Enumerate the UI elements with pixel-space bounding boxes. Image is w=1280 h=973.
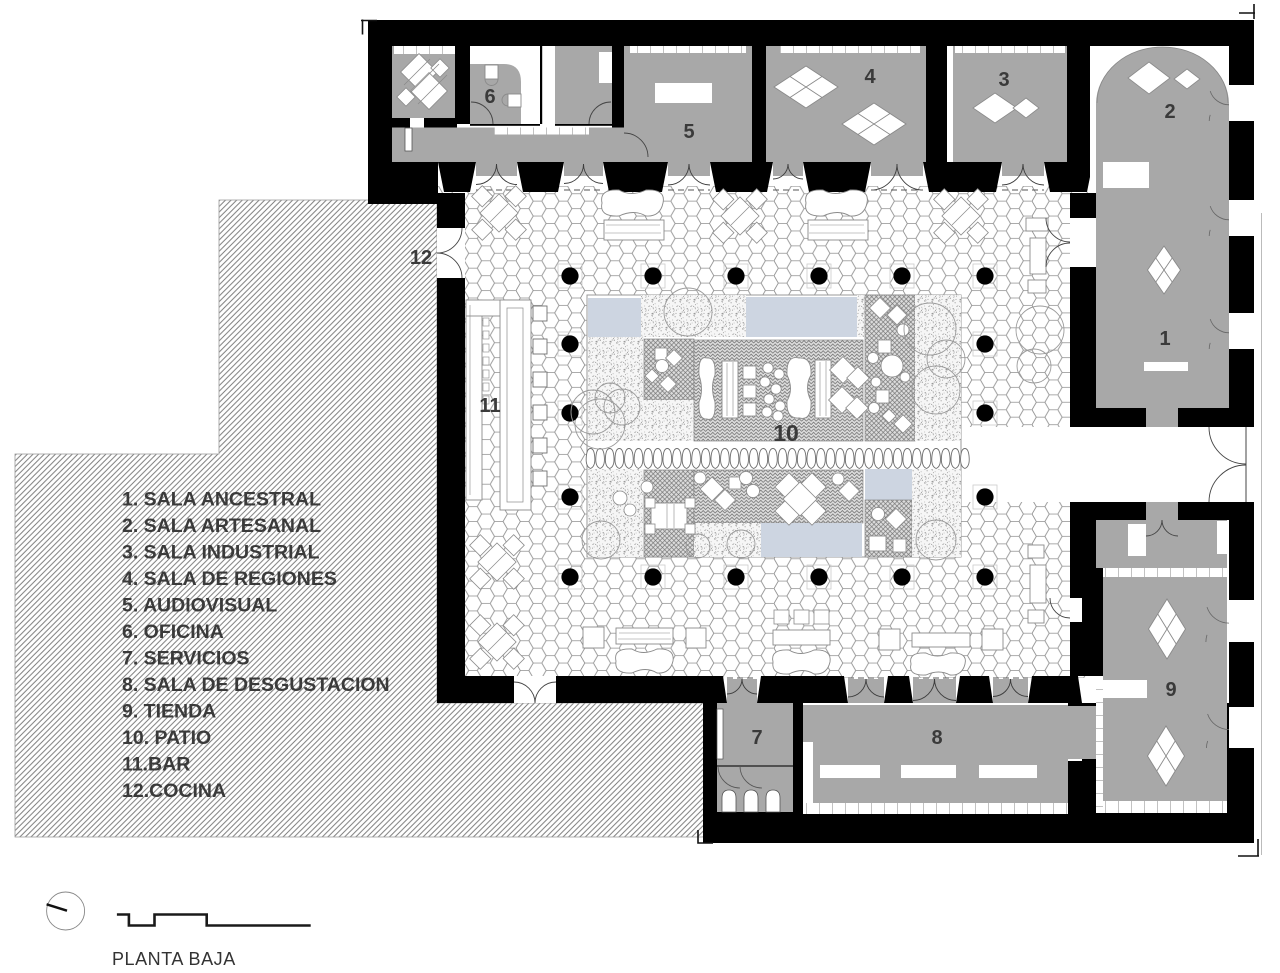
svg-text:3: 3	[998, 69, 1009, 91]
svg-text:2. SALA ARTESANAL: 2. SALA ARTESANAL	[122, 515, 321, 537]
svg-text:2: 2	[1164, 101, 1175, 123]
svg-text:8: 8	[931, 727, 942, 749]
svg-text:10: 10	[773, 420, 799, 446]
svg-text:12: 12	[410, 247, 432, 269]
svg-text:7: 7	[751, 727, 762, 749]
svg-text:7. SERVICIOS: 7. SERVICIOS	[122, 648, 250, 670]
svg-text:8. SALA DE DESGUSTACION: 8. SALA DE DESGUSTACION	[122, 674, 390, 696]
svg-text:9: 9	[1165, 679, 1176, 701]
svg-text:1. SALA ANCESTRAL: 1. SALA ANCESTRAL	[122, 489, 321, 511]
svg-text:4. SALA DE REGIONES: 4. SALA DE REGIONES	[122, 568, 337, 590]
svg-text:5. AUDIOVISUAL: 5. AUDIOVISUAL	[122, 595, 277, 617]
svg-text:11: 11	[479, 395, 500, 417]
svg-text:1: 1	[1159, 328, 1170, 350]
svg-text:3. SALA INDUSTRIAL: 3. SALA INDUSTRIAL	[122, 542, 320, 564]
svg-text:10. PATIO: 10. PATIO	[122, 727, 211, 749]
svg-text:6: 6	[484, 86, 495, 108]
svg-text:11.BAR: 11.BAR	[122, 754, 190, 776]
svg-text:6. OFICINA: 6. OFICINA	[122, 621, 224, 643]
svg-text:12.COCINA: 12.COCINA	[122, 780, 226, 802]
svg-text:5: 5	[683, 121, 694, 143]
svg-text:4: 4	[864, 66, 876, 88]
svg-text:PLANTA BAJA: PLANTA BAJA	[112, 949, 236, 969]
svg-text:9. TIENDA: 9. TIENDA	[122, 701, 216, 723]
